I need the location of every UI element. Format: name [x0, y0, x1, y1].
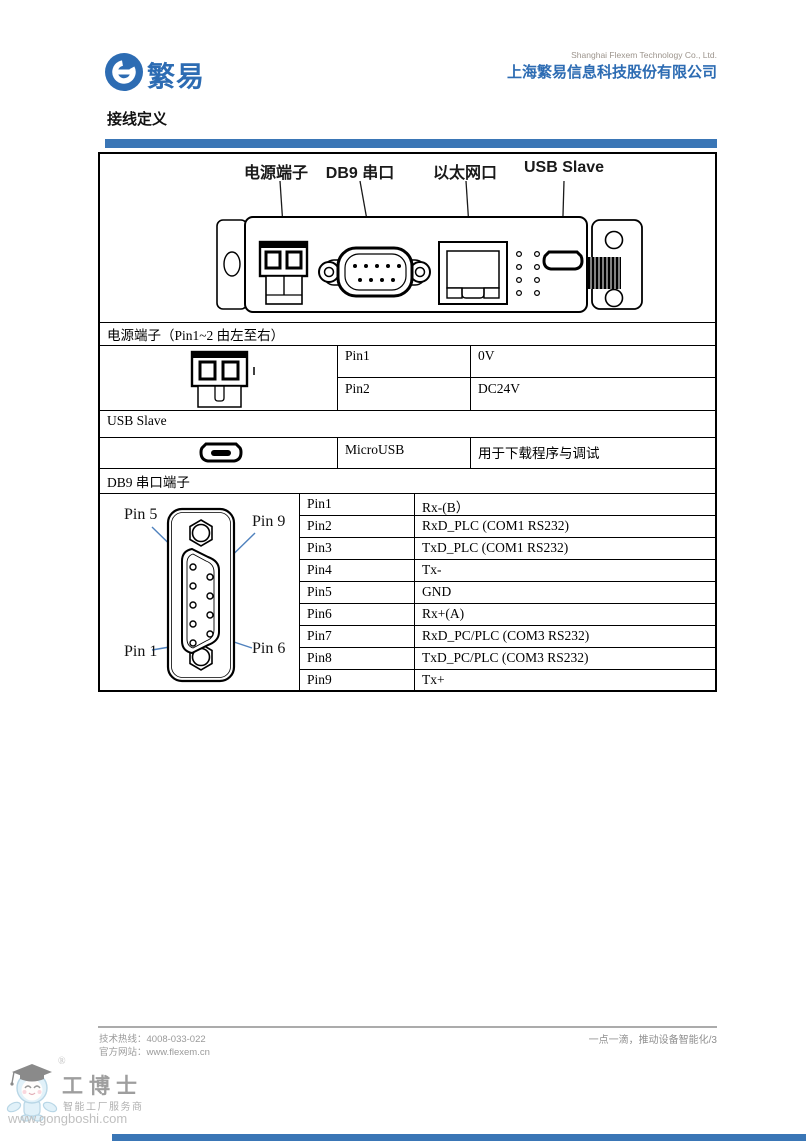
table-divider — [414, 493, 415, 690]
usb-pin-desc: 用于下载程序与调试 — [478, 442, 600, 462]
db9-label-pin6: Pin 6 — [252, 640, 285, 658]
table-divider — [100, 468, 715, 469]
device-label-db9: DB9 串口 — [326, 159, 394, 183]
page-title: 接线定义 — [107, 108, 167, 129]
table-divider — [470, 437, 471, 468]
company-name-cn: 上海繁易信息科技股份有限公司 — [507, 61, 717, 82]
usb-section-header: USB Slave — [107, 413, 167, 429]
db9-label-pin5: Pin 5 — [124, 506, 157, 524]
company-name-en: Shanghai Flexem Technology Co., Ltd. — [571, 50, 717, 60]
table-divider — [299, 669, 715, 670]
db9-pin7-desc: RxD_PC/PLC (COM3 RS232) — [422, 628, 589, 644]
db9-pin9-name: Pin9 — [307, 672, 332, 688]
table-divider — [100, 322, 715, 323]
db9-section-header: DB9 串口端子 — [107, 471, 190, 491]
power-pin2-name: Pin2 — [345, 381, 370, 397]
db9-pin3-desc: TxD_PLC (COM1 RS232) — [422, 540, 568, 556]
logo-text: 繁易 — [147, 55, 205, 95]
usb-pin-name: MicroUSB — [345, 442, 404, 458]
table-divider — [299, 493, 300, 690]
power-pin2-desc: DC24V — [478, 381, 520, 397]
db9-pin6-name: Pin6 — [307, 606, 332, 622]
flexem-logo-icon — [104, 52, 144, 92]
db9-pin4-name: Pin4 — [307, 562, 332, 578]
db9-pin6-desc: Rx+(A) — [422, 606, 464, 622]
db9-pin8-name: Pin8 — [307, 650, 332, 666]
db9-label-pin1: Pin 1 — [124, 643, 157, 661]
device-label-power: 电源端子 — [244, 159, 308, 183]
micro-usb-drawing — [100, 437, 337, 468]
db9-pin5-desc: GND — [422, 584, 451, 600]
table-divider — [100, 410, 715, 411]
bottom-accent-bar — [112, 1134, 806, 1141]
db9-pin1-name: Pin1 — [307, 496, 332, 512]
watermark-url: www.gongboshi.com — [8, 1111, 127, 1126]
table-divider — [299, 625, 715, 626]
table-divider — [337, 437, 338, 468]
gongboshi-watermark: ® 工博士 智能工厂服务商 www.gongboshi.com — [6, 1058, 196, 1130]
db9-pin7-name: Pin7 — [307, 628, 332, 644]
power-terminal-drawing — [100, 345, 337, 410]
table-divider — [470, 345, 471, 410]
table-divider — [299, 603, 715, 604]
db9-pin5-name: Pin5 — [307, 584, 332, 600]
db9-pin2-name: Pin2 — [307, 518, 332, 534]
table-divider — [299, 515, 715, 516]
power-pin1-name: Pin1 — [345, 348, 370, 364]
db9-pin1-desc: Rx-(B） — [422, 496, 469, 516]
db9-connector-drawing: Pin 5 Pin 9 Pin 1 Pin 6 — [100, 493, 299, 690]
power-section-header: 电源端子（Pin1~2 由左至右） — [107, 324, 284, 344]
db9-pin3-name: Pin3 — [307, 540, 332, 556]
footer-slogan-page-number: 一点一滴，推动设备智能化/3 — [589, 1031, 717, 1046]
db9-pin4-desc: Tx- — [422, 562, 442, 578]
table-divider — [299, 647, 715, 648]
registered-mark: ® — [58, 1056, 66, 1067]
table-divider — [337, 377, 715, 378]
table-divider — [299, 581, 715, 582]
device-front-view-diagram: 电源端子 DB9 串口 以太网口 USB Slave — [100, 154, 715, 322]
device-label-usb-slave: USB Slave — [524, 159, 604, 177]
footer-hotline: 技术热线：4008-033-022 — [99, 1031, 206, 1045]
document-page: 繁易 Shanghai Flexem Technology Co., Ltd. … — [0, 0, 806, 1141]
device-diagram-drawing — [100, 154, 715, 322]
title-underline-bar — [105, 139, 717, 148]
db9-pin9-desc: Tx+ — [422, 672, 445, 688]
db9-pin8-desc: TxD_PC/PLC (COM3 RS232) — [422, 650, 589, 666]
table-divider — [299, 537, 715, 538]
watermark-brand: 工博士 — [62, 1070, 143, 1100]
wiring-definition-table: 电源端子 DB9 串口 以太网口 USB Slave 电源端子（Pin1~2 由… — [98, 152, 717, 692]
db9-pin2-desc: RxD_PLC (COM1 RS232) — [422, 518, 569, 534]
table-divider — [337, 345, 338, 410]
device-label-ethernet: 以太网口 — [433, 159, 497, 183]
footer-divider — [98, 1026, 717, 1028]
footer-website: 官方网站：www.flexem.cn — [99, 1044, 210, 1058]
table-divider — [299, 559, 715, 560]
db9-label-pin9: Pin 9 — [252, 513, 285, 531]
power-pin1-desc: 0V — [478, 348, 495, 364]
